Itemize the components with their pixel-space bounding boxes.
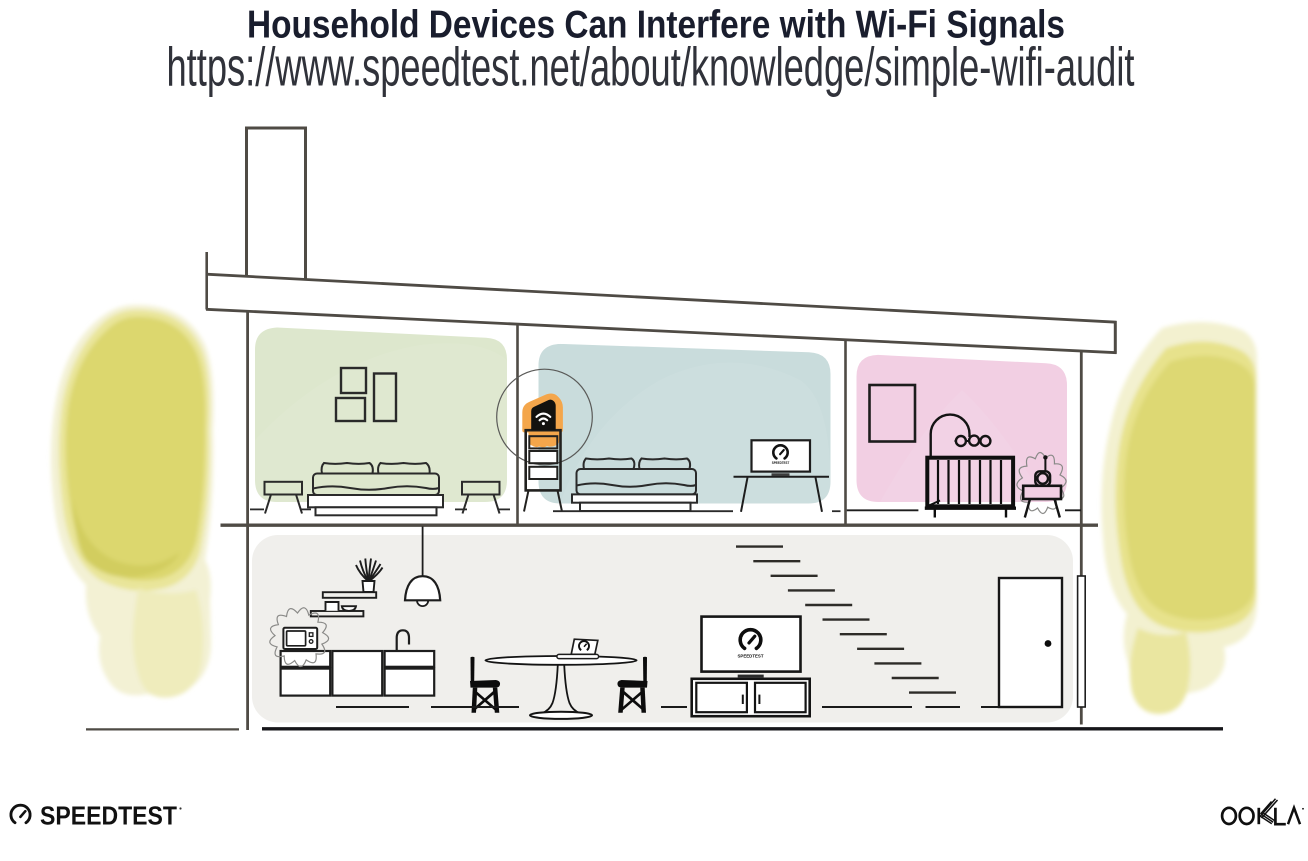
- svg-text:https://www.speedtest.net/abou: https://www.speedtest.net/about/knowledg…: [167, 36, 1135, 98]
- svg-text:SPEEDTEST: SPEEDTEST: [738, 653, 764, 658]
- svg-text:SPEEDTEST: SPEEDTEST: [772, 461, 790, 465]
- svg-text:SPEEDTEST: SPEEDTEST: [40, 803, 177, 831]
